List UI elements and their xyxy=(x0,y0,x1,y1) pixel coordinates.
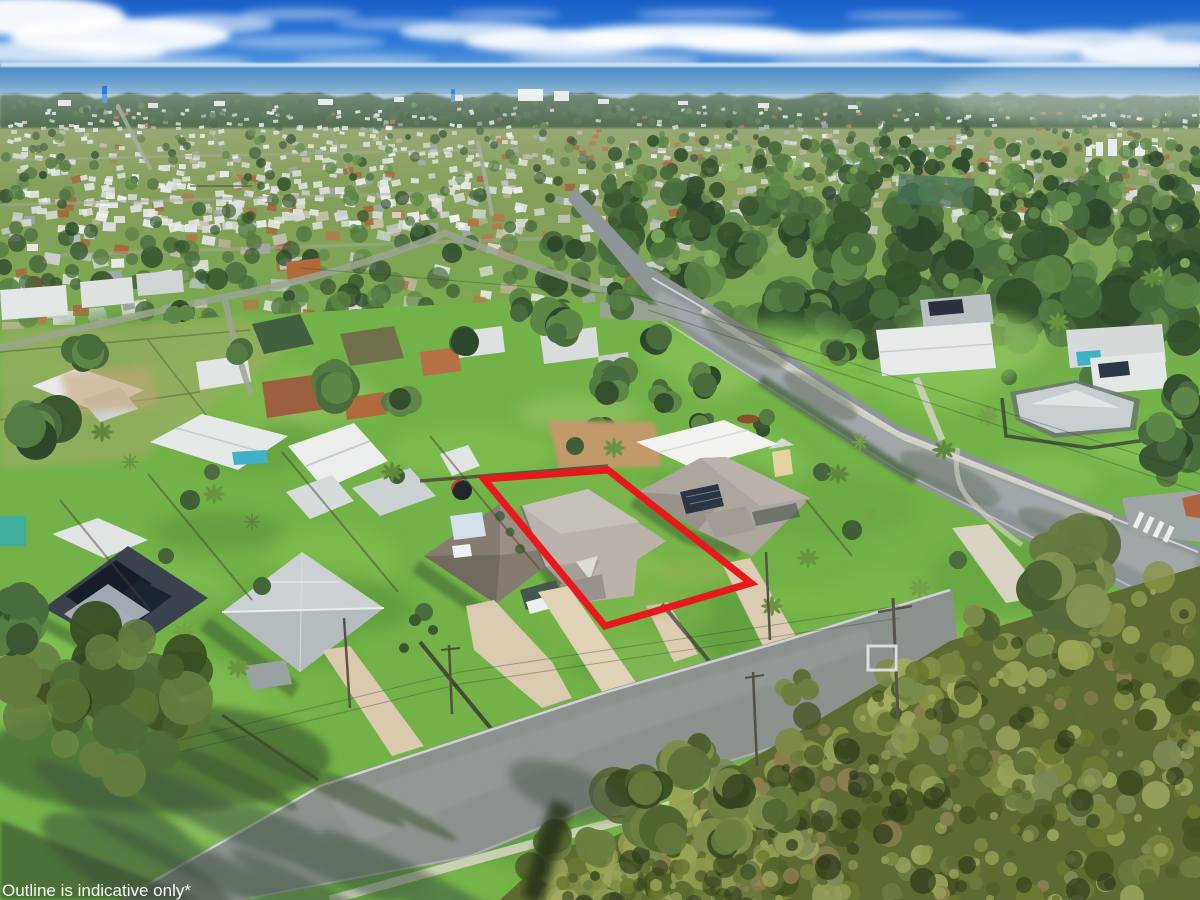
svg-text:Outline is indicative only*: Outline is indicative only* xyxy=(2,881,191,900)
